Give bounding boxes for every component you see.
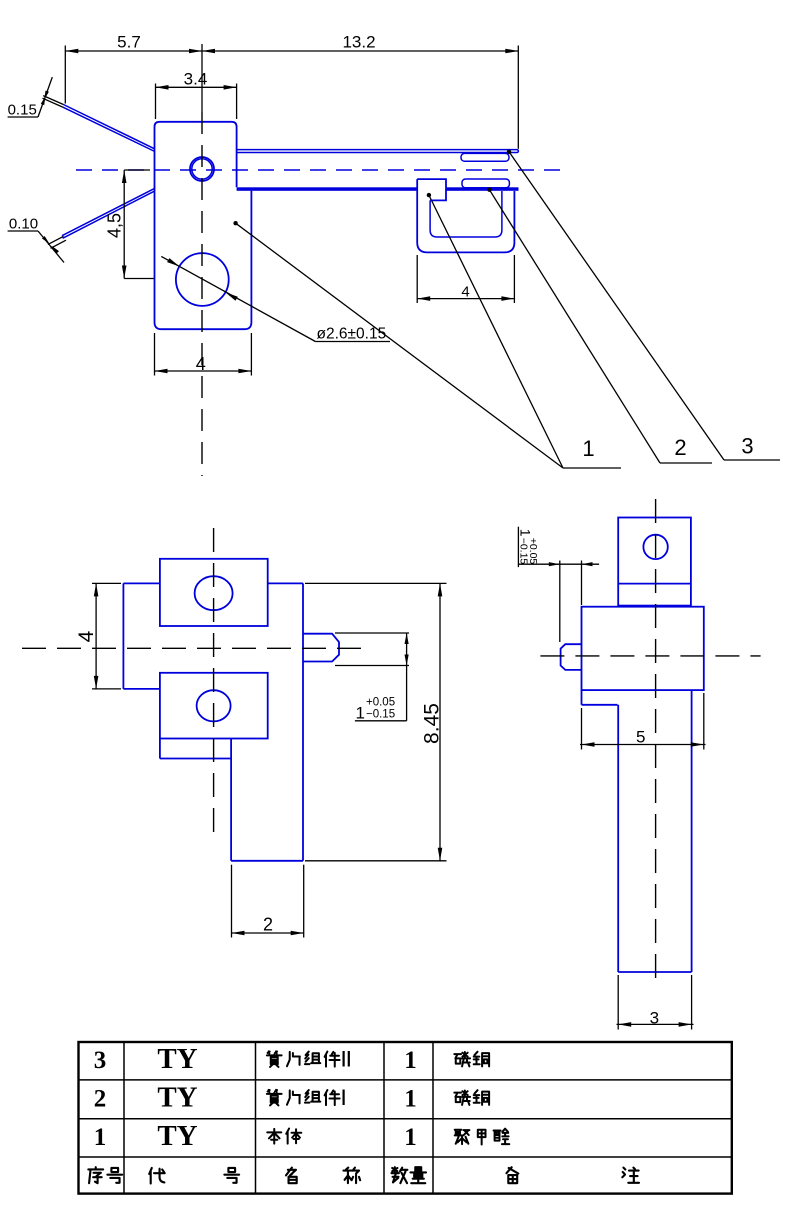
- svg-text:0.10: 0.10: [9, 216, 38, 233]
- svg-text:−0.15: −0.15: [366, 709, 395, 721]
- svg-text:5: 5: [636, 728, 645, 747]
- svg-text:1: 1: [582, 436, 594, 461]
- svg-text:1: 1: [517, 529, 533, 537]
- svg-text:1: 1: [94, 1124, 107, 1151]
- svg-text:5.7: 5.7: [117, 33, 141, 52]
- svg-text:4,5: 4,5: [105, 213, 125, 238]
- svg-text:2: 2: [674, 435, 686, 460]
- svg-text:0.15: 0.15: [8, 102, 37, 119]
- svg-text:3.4: 3.4: [184, 70, 208, 89]
- svg-text:+0.05: +0.05: [366, 697, 395, 709]
- svg-text:3: 3: [650, 1008, 659, 1027]
- svg-text:3: 3: [94, 1047, 107, 1074]
- svg-text:4: 4: [75, 630, 98, 642]
- svg-text:TY: TY: [157, 1120, 197, 1152]
- svg-text:1: 1: [404, 1124, 417, 1151]
- svg-text:TY: TY: [157, 1043, 197, 1075]
- svg-text:1: 1: [404, 1047, 417, 1074]
- svg-text:3: 3: [741, 434, 753, 459]
- svg-text:2: 2: [263, 915, 273, 935]
- svg-text:13.2: 13.2: [342, 33, 375, 52]
- svg-text:1: 1: [356, 704, 365, 723]
- svg-text:8.45: 8.45: [421, 703, 444, 744]
- svg-text:4: 4: [196, 354, 206, 374]
- svg-text:TY: TY: [157, 1082, 197, 1114]
- svg-text:1: 1: [404, 1086, 417, 1113]
- svg-text:2: 2: [94, 1086, 107, 1113]
- svg-text:−0.15: −0.15: [517, 538, 529, 565]
- svg-text:4: 4: [461, 284, 469, 301]
